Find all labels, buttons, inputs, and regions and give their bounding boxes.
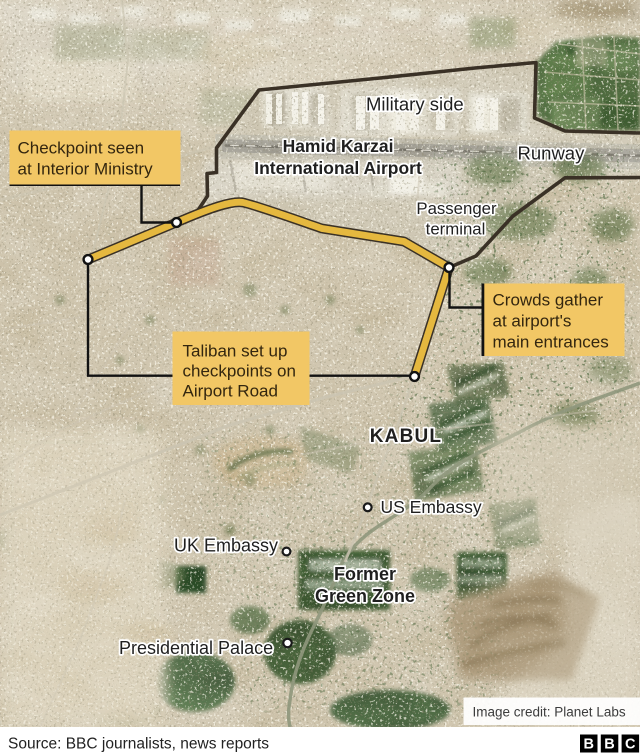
svg-text:B: B: [604, 737, 614, 753]
svg-text:Green Zone: Green Zone: [315, 586, 415, 606]
svg-text:terminal: terminal: [426, 220, 486, 239]
svg-text:Runway: Runway: [518, 143, 586, 164]
svg-text:checkpoints on: checkpoints on: [183, 362, 296, 381]
svg-text:Hamid Karzai: Hamid Karzai: [283, 136, 394, 156]
svg-text:Airport Road: Airport Road: [183, 382, 278, 401]
svg-text:C: C: [625, 737, 636, 753]
svg-text:Image credit: Planet Labs: Image credit: Planet Labs: [473, 705, 626, 720]
svg-text:Presidential Palace: Presidential Palace: [119, 638, 273, 658]
svg-text:Checkpoint seen: Checkpoint seen: [18, 139, 145, 158]
svg-text:KABUL: KABUL: [370, 426, 443, 447]
svg-text:Crowds gather: Crowds gather: [493, 291, 604, 310]
svg-text:at Interior Ministry: at Interior Ministry: [18, 160, 154, 179]
svg-text:US Embassy: US Embassy: [381, 497, 482, 517]
svg-text:UK Embassy: UK Embassy: [174, 536, 278, 556]
svg-text:main entrances: main entrances: [493, 333, 609, 352]
svg-text:Source: BBC journalists, news: Source: BBC journalists, news reports: [8, 736, 269, 753]
svg-text:at airport's: at airport's: [493, 312, 572, 331]
svg-text:International Airport: International Airport: [254, 158, 422, 178]
svg-text:Taliban set up: Taliban set up: [183, 342, 288, 361]
svg-text:Former: Former: [334, 564, 396, 584]
svg-text:B: B: [583, 737, 593, 753]
svg-text:Military side: Military side: [366, 94, 464, 115]
svg-text:Passenger: Passenger: [416, 199, 497, 218]
